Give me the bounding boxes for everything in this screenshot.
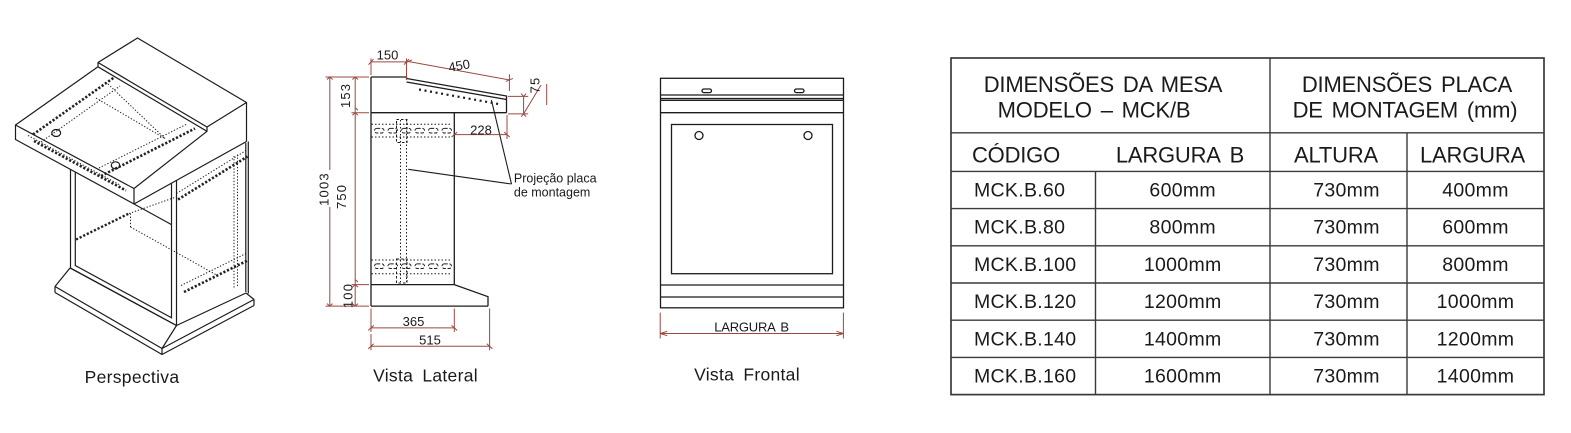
svg-text:de montagem: de montagem [514, 186, 590, 200]
svg-text:ALTURA: ALTURA [1294, 143, 1378, 168]
svg-text:730mm: 730mm [1313, 366, 1380, 388]
svg-text:LARGURA: LARGURA [1420, 143, 1525, 168]
svg-text:MCK.B.80: MCK.B.80 [974, 217, 1065, 239]
svg-text:730mm: 730mm [1313, 180, 1380, 202]
svg-text:LARGURA B: LARGURA B [714, 319, 789, 334]
svg-text:800mm: 800mm [1442, 254, 1509, 276]
svg-text:1400mm: 1400mm [1437, 366, 1515, 388]
svg-text:MCK.B.140: MCK.B.140 [974, 328, 1076, 350]
svg-text:730mm: 730mm [1313, 217, 1380, 239]
svg-text:Vista Frontal: Vista Frontal [694, 365, 800, 385]
svg-text:1600mm: 1600mm [1144, 366, 1222, 388]
svg-text:100: 100 [341, 283, 356, 308]
svg-text:LARGURA B: LARGURA B [1116, 143, 1244, 168]
svg-text:MODELO – MCK/B: MODELO – MCK/B [998, 97, 1191, 122]
svg-text:228: 228 [470, 123, 492, 138]
svg-text:1000mm: 1000mm [1437, 291, 1515, 313]
svg-text:Perspectiva: Perspectiva [85, 367, 180, 387]
svg-text:150: 150 [377, 48, 399, 63]
svg-text:Projeção placa: Projeção placa [514, 172, 597, 186]
svg-text:400mm: 400mm [1442, 180, 1509, 202]
svg-text:750: 750 [334, 184, 349, 209]
svg-text:DIMENSÕES PLACA: DIMENSÕES PLACA [1302, 72, 1513, 97]
svg-text:MCK.B.60: MCK.B.60 [974, 180, 1065, 202]
svg-text:DIMENSÕES DA MESA: DIMENSÕES DA MESA [984, 72, 1223, 97]
svg-text:DE MONTAGEM (mm): DE MONTAGEM (mm) [1293, 97, 1518, 122]
svg-text:365: 365 [403, 314, 425, 329]
svg-text:CÓDIGO: CÓDIGO [972, 143, 1060, 168]
svg-text:1400mm: 1400mm [1144, 328, 1222, 350]
svg-text:1200mm: 1200mm [1144, 291, 1222, 313]
svg-text:730mm: 730mm [1313, 254, 1380, 276]
svg-text:MCK.B.100: MCK.B.100 [974, 254, 1076, 276]
svg-text:1200mm: 1200mm [1437, 328, 1515, 350]
svg-text:MCK.B.120: MCK.B.120 [974, 291, 1076, 313]
svg-text:600mm: 600mm [1149, 180, 1216, 202]
svg-text:153: 153 [338, 83, 353, 108]
svg-text:600mm: 600mm [1442, 217, 1509, 239]
svg-text:75: 75 [528, 77, 543, 94]
svg-text:730mm: 730mm [1313, 291, 1380, 313]
svg-text:1003: 1003 [317, 172, 332, 206]
svg-text:MCK.B.160: MCK.B.160 [974, 366, 1076, 388]
svg-text:730mm: 730mm [1313, 328, 1380, 350]
svg-text:800mm: 800mm [1149, 217, 1216, 239]
svg-text:515: 515 [419, 333, 441, 348]
svg-text:1000mm: 1000mm [1144, 254, 1222, 276]
svg-text:Vista Lateral: Vista Lateral [373, 366, 478, 386]
